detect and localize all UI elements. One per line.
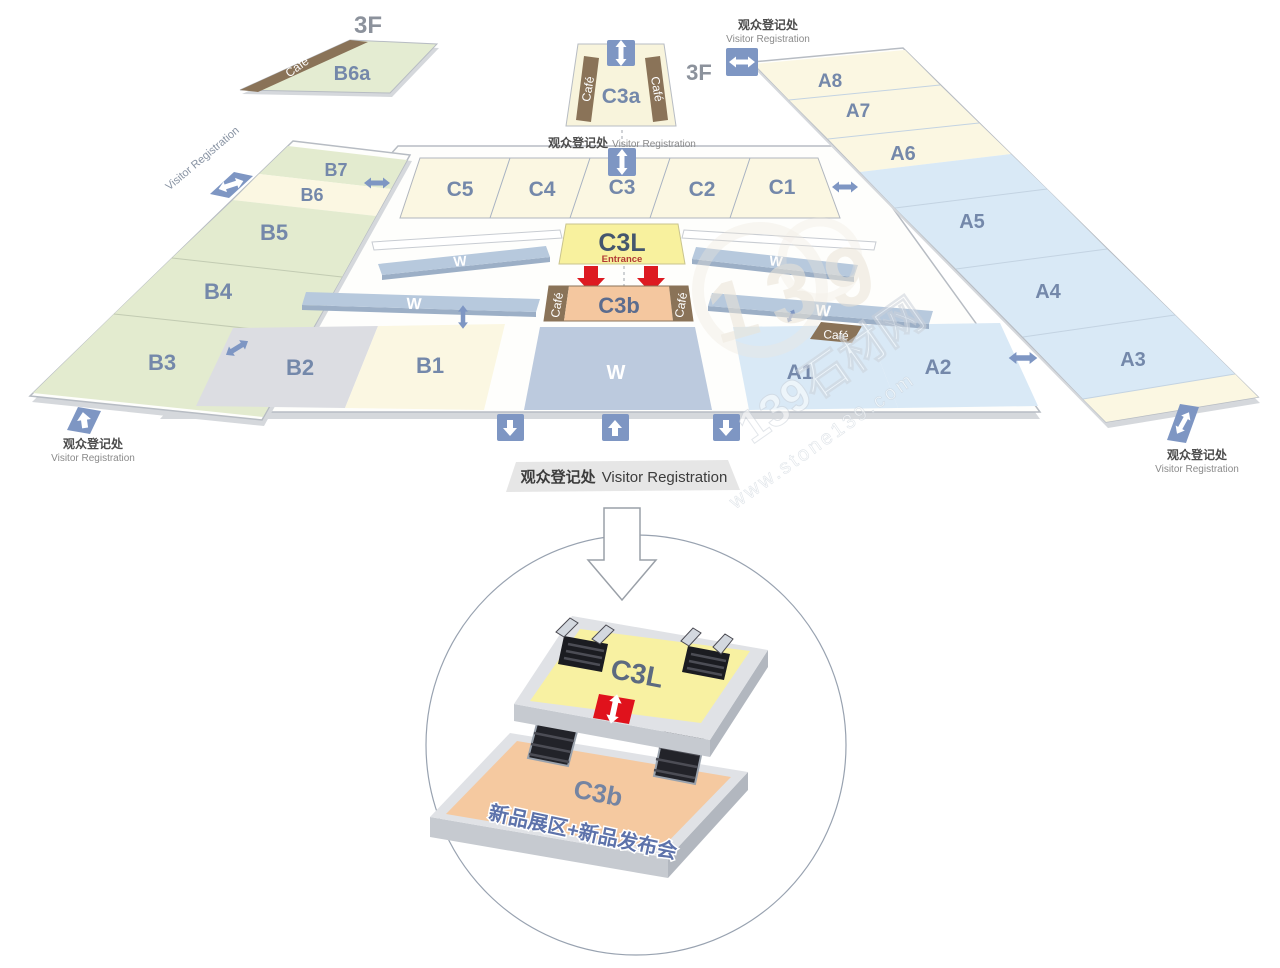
hall-c5-label: C5 — [447, 178, 474, 201]
hall-a5-label: A5 — [959, 211, 985, 233]
registration-bottom-left: 观众登记处 Visitor Registration — [51, 407, 135, 464]
registration-en: Visitor Registration — [726, 34, 810, 45]
c3a-structure: Café Café C3a 3F 观众登记处Visitor Registrati… — [548, 40, 712, 150]
registration-banner: 观众登记处Visitor Registration — [506, 460, 740, 492]
hall-b6a-label: B6a — [334, 63, 372, 85]
hall-b2-label: B2 — [286, 355, 314, 380]
registration-left-wing: Visitor Registration — [164, 125, 253, 198]
hall-a6-label: A6 — [890, 143, 916, 165]
hall-c3b-label: C3b — [598, 293, 640, 318]
corridor-plaza-label: W — [607, 362, 626, 384]
hall-a3-label: A3 — [1120, 349, 1146, 371]
hall-c3l-label: C3L — [598, 229, 645, 257]
floor-3f-left-label: 3F — [354, 12, 382, 39]
hall-a4-label: A4 — [1035, 281, 1061, 303]
c3b-block: Café Café C3b — [544, 286, 693, 321]
registration-en: Visitor Registration — [51, 453, 135, 464]
registration-zh: 观众登记处 — [738, 17, 799, 32]
hall-b7-label: B7 — [324, 160, 347, 180]
hall-c3a-label: C3a — [602, 85, 641, 108]
hall-b4-label: B4 — [204, 279, 233, 304]
hall-b5-label: B5 — [260, 220, 288, 245]
callout-pointer-arrow — [588, 508, 656, 600]
exhibition-floorplan: B7 B6 B5 B4 B3 A8 A7 A6 A5 A4 A3 C5 C4 C… — [0, 0, 1280, 968]
corridor-strip-lower-left-label: W — [406, 296, 423, 314]
hall-c2-label: C2 — [689, 178, 716, 201]
b6a-structure: Café B6a 3F — [240, 12, 439, 97]
hall-c4-label: C4 — [529, 178, 556, 201]
c3l-entrance-label: Entrance — [602, 254, 643, 265]
hall-b3-label: B3 — [148, 350, 176, 375]
hall-a2-label: A2 — [925, 356, 952, 379]
banner-label: 观众登记处Visitor Registration — [521, 468, 728, 486]
floor-3f-center-label: 3F — [686, 60, 712, 85]
registration-zh: 观众登记处 — [63, 436, 124, 451]
hall-a8-label: A8 — [818, 71, 842, 92]
hall-b6-label: B6 — [300, 185, 323, 205]
hall-a7-label: A7 — [846, 101, 870, 122]
hall-c3-label: C3 — [609, 176, 636, 199]
callout-circle — [426, 535, 846, 955]
hall-c1-label: C1 — [769, 176, 796, 199]
floorplan-svg: B7 B6 B5 B4 B3 A8 A7 A6 A5 A4 A3 C5 C4 C… — [0, 0, 1280, 968]
registration-en: Visitor Registration — [1155, 464, 1239, 475]
corridor-strip-upper-left-label: W — [453, 252, 468, 269]
hall-b1-label: B1 — [416, 353, 444, 378]
registration-zh: 观众登记处 — [1167, 447, 1228, 462]
detail-callout: C3L C3b 新品展区+新品发布会 — [426, 508, 846, 955]
